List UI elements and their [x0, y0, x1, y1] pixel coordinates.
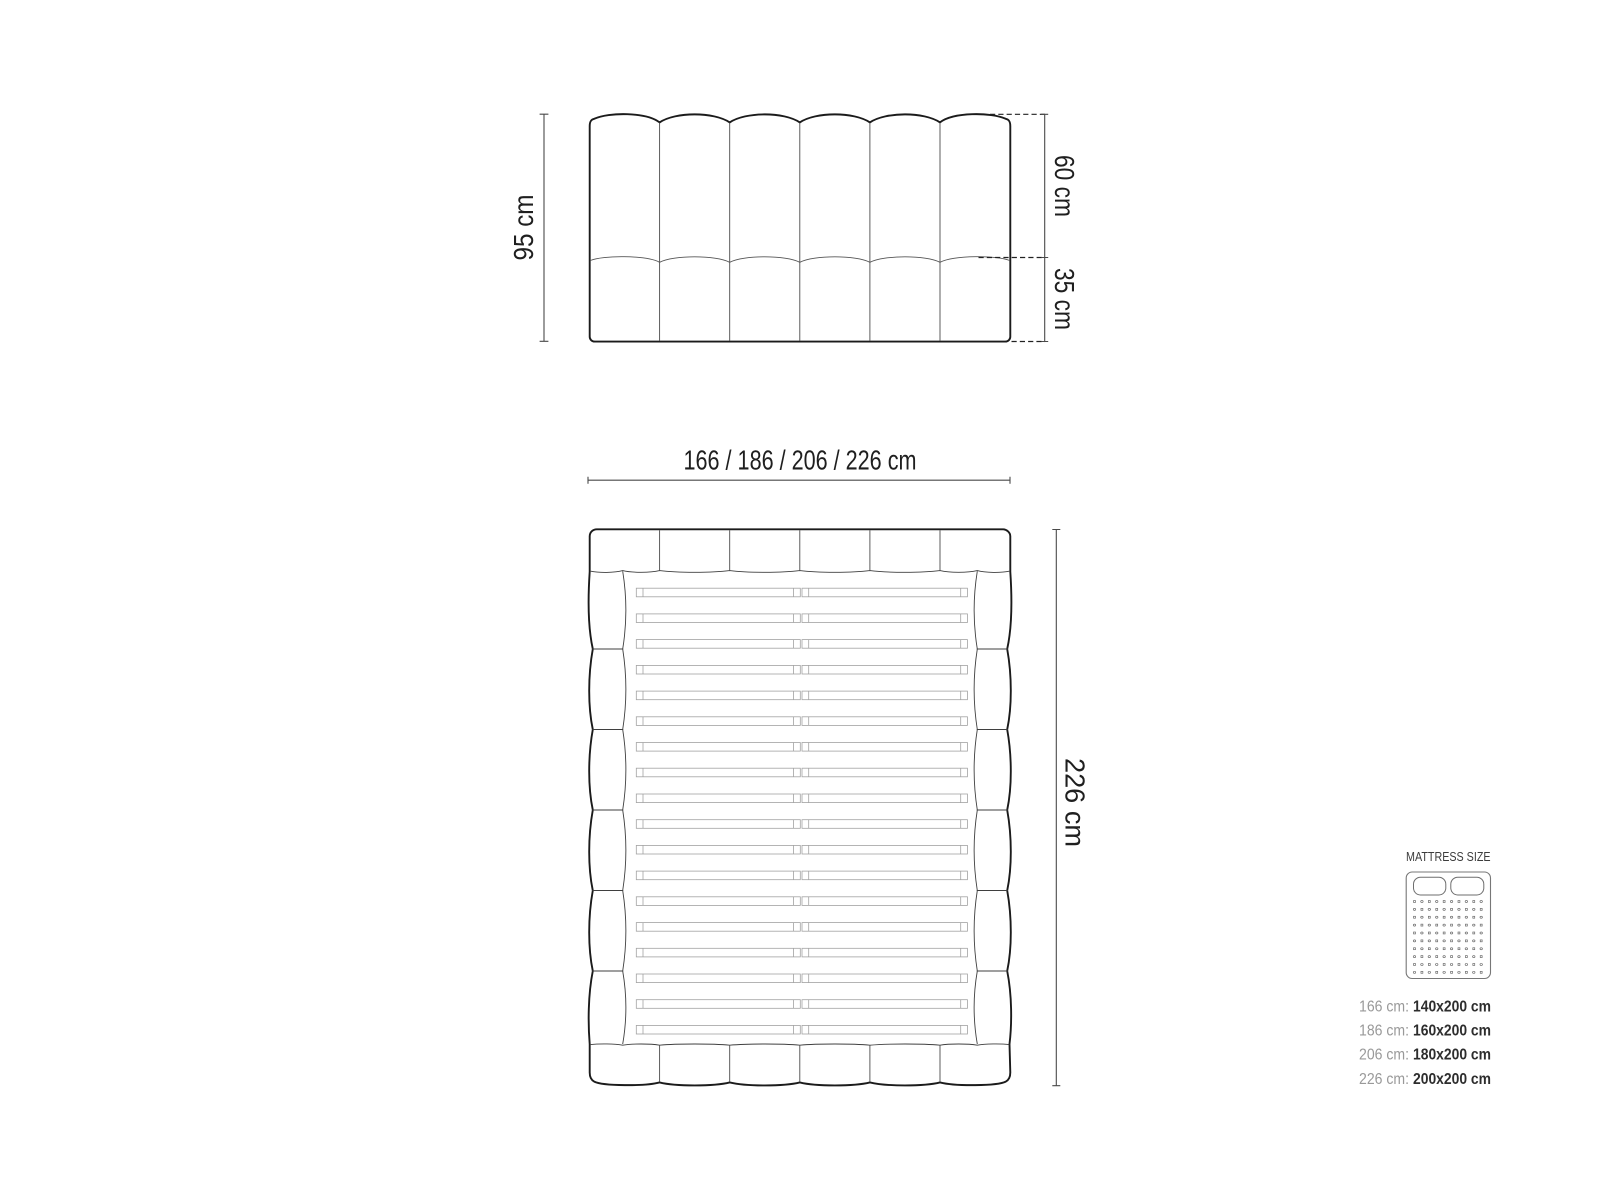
- svg-text:166 cm:: 166 cm:: [1359, 999, 1409, 1016]
- svg-text:186 cm:: 186 cm:: [1359, 1023, 1409, 1040]
- svg-text:206 cm:: 206 cm:: [1359, 1047, 1409, 1064]
- svg-text:226 cm: 226 cm: [1060, 758, 1091, 847]
- svg-text:60 cm: 60 cm: [1049, 155, 1080, 217]
- svg-text:140x200 cm: 140x200 cm: [1413, 999, 1491, 1016]
- svg-text:95 cm: 95 cm: [508, 195, 539, 261]
- svg-text:226 cm:: 226 cm:: [1359, 1071, 1409, 1088]
- svg-text:160x200 cm: 160x200 cm: [1413, 1023, 1491, 1040]
- svg-text:180x200 cm: 180x200 cm: [1413, 1047, 1491, 1064]
- svg-text:166 / 186 / 206 / 226 cm: 166 / 186 / 206 / 226 cm: [684, 445, 917, 476]
- svg-text:200x200 cm: 200x200 cm: [1413, 1071, 1491, 1088]
- svg-text:MATTRESS SIZE: MATTRESS SIZE: [1406, 849, 1491, 864]
- svg-text:35 cm: 35 cm: [1049, 268, 1080, 330]
